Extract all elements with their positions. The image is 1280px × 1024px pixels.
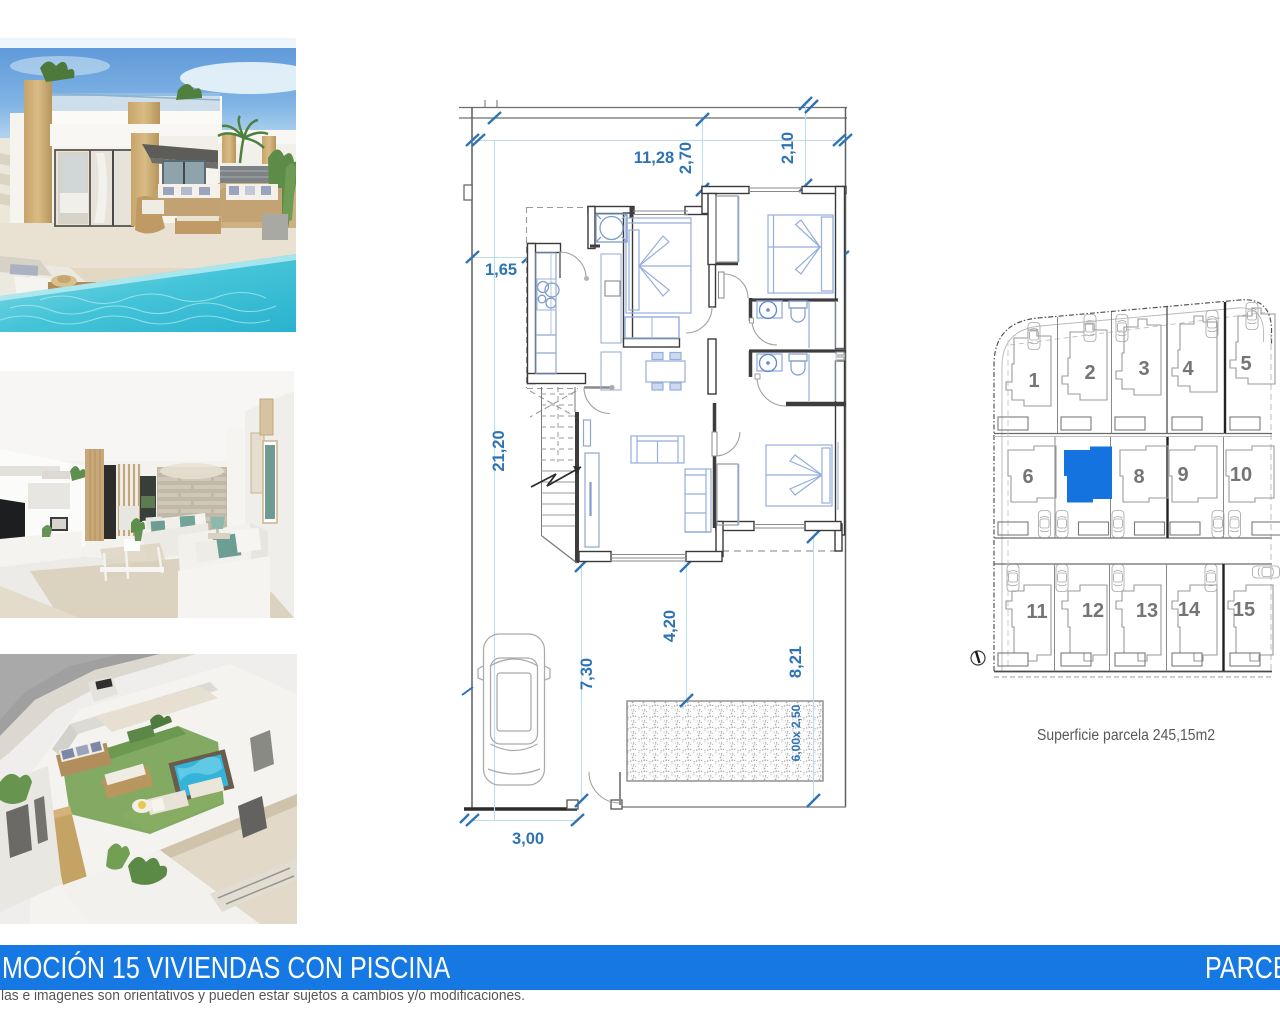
svg-text:12: 12 [1082,600,1104,622]
svg-text:14: 14 [1178,599,1201,621]
svg-text:1: 1 [1028,370,1039,392]
svg-text:11,28: 11,28 [634,149,674,167]
svg-text:1,65: 1,65 [485,261,517,279]
svg-text:6,00x 2,50: 6,00x 2,50 [789,704,803,761]
svg-text:4,20: 4,20 [661,610,679,642]
svg-text:4: 4 [1182,358,1194,380]
svg-text:7,30: 7,30 [578,658,596,690]
svg-text:8,21: 8,21 [787,646,805,678]
svg-text:2,10: 2,10 [779,132,797,164]
svg-text:10: 10 [1230,464,1252,486]
svg-text:3: 3 [1138,358,1149,380]
svg-text:2: 2 [1084,362,1095,384]
svg-text:6: 6 [1022,466,1033,488]
svg-text:8: 8 [1133,466,1144,488]
svg-text:3,00: 3,00 [512,830,544,848]
svg-text:2,70: 2,70 [677,142,695,174]
svg-text:11: 11 [1026,601,1047,623]
svg-text:Superficie parcela 245,15m2: Superficie parcela 245,15m2 [1037,727,1215,744]
svg-text:15: 15 [1233,599,1255,621]
svg-text:13: 13 [1136,600,1158,622]
svg-text:9: 9 [1177,464,1188,486]
svg-text:5: 5 [1240,353,1251,375]
svg-text:21,20: 21,20 [490,430,508,471]
